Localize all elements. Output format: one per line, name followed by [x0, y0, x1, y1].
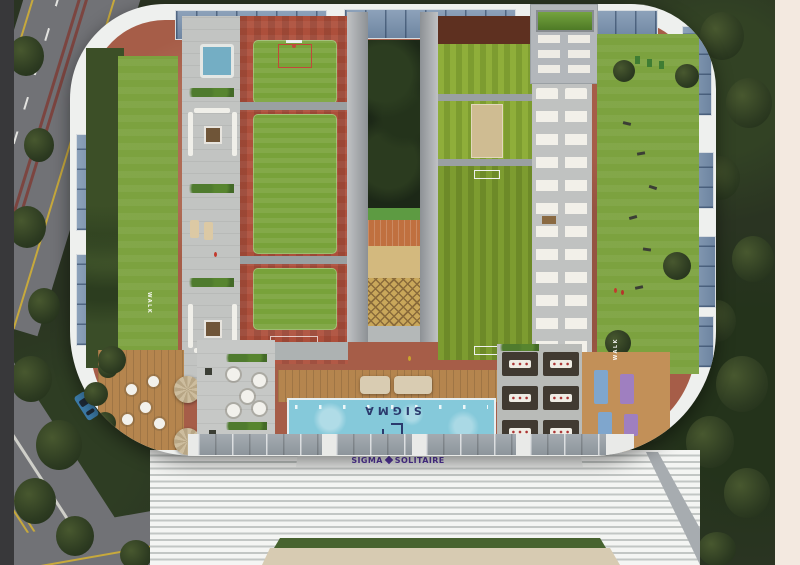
terrace-table	[253, 374, 266, 387]
tree	[28, 288, 60, 324]
tree	[84, 382, 108, 406]
solar-panel-array	[426, 434, 516, 455]
tree	[726, 78, 772, 128]
courtyard-walk-end	[368, 326, 420, 342]
yoga-mat	[594, 370, 608, 404]
tree	[724, 468, 770, 518]
facade-sign-word2: SOLITAIRE	[395, 456, 445, 465]
planter	[188, 88, 234, 97]
tree	[675, 64, 699, 88]
wing-wall-right	[420, 12, 438, 342]
car-rear-window	[85, 408, 95, 416]
tree	[732, 236, 774, 282]
terrace-table	[241, 390, 254, 403]
courtyard-paving-tan	[368, 246, 420, 278]
tree	[10, 356, 52, 402]
court-divider-walk	[438, 159, 533, 166]
lawn-chair	[647, 59, 652, 67]
turf-top-apron	[438, 16, 533, 44]
terrace-table	[227, 404, 240, 417]
cafe-table	[140, 402, 151, 413]
cabana	[543, 386, 579, 410]
bench	[542, 216, 556, 224]
walk-track-label: WALK	[146, 292, 152, 314]
turf-section	[438, 44, 533, 94]
court-divider-walk	[240, 102, 348, 110]
wing-wall-left	[347, 12, 368, 342]
tree	[14, 478, 56, 524]
screen-seating	[538, 35, 560, 79]
courtyard-mosaic	[368, 278, 420, 326]
basketball-rim	[292, 44, 296, 48]
cafe-table	[154, 418, 165, 429]
sign-logo-icon	[385, 456, 393, 464]
person	[614, 288, 617, 293]
lawn-chair	[635, 56, 640, 64]
court-section	[253, 114, 337, 254]
tree	[24, 128, 54, 162]
outdoor-gym-lawn	[597, 34, 699, 374]
goal-post	[474, 170, 500, 179]
sun-lounger	[204, 222, 213, 240]
yoga-mat	[624, 414, 638, 436]
coffee-table	[204, 126, 222, 144]
person	[408, 356, 411, 361]
margin-band-right	[775, 0, 800, 565]
cabana-table	[509, 360, 531, 368]
court-divider-walk	[438, 94, 533, 101]
gym-equipment	[637, 151, 645, 155]
cabana-table	[509, 394, 531, 402]
sofa	[188, 112, 193, 156]
turf-court-block	[438, 16, 533, 360]
person	[621, 290, 624, 295]
planter	[499, 344, 539, 351]
cafe-table	[122, 414, 133, 425]
cafe-table	[126, 384, 137, 395]
screen-lounge	[530, 4, 598, 84]
basketball-hoop	[286, 40, 302, 43]
pool-canopy	[394, 376, 432, 394]
gym-equipment	[643, 247, 651, 251]
cabana	[502, 386, 538, 410]
courtyard-canopy-trees	[368, 40, 420, 208]
sofa	[194, 108, 230, 113]
planter	[225, 422, 267, 430]
gym-equipment	[635, 285, 643, 289]
outdoor-screen	[536, 10, 594, 32]
cabana-table	[550, 360, 572, 368]
gym-equipment	[629, 215, 637, 220]
person	[214, 252, 217, 257]
sofa	[232, 112, 237, 156]
tree	[716, 356, 768, 412]
tree	[613, 60, 635, 82]
aerial-render-scene: SIGMA SOLITAIRE	[0, 0, 800, 565]
letterbox-band-left	[0, 0, 14, 565]
lawn-left	[118, 56, 178, 374]
tree	[120, 540, 152, 565]
solar-panel-array	[198, 434, 322, 455]
bbq-grill	[205, 368, 212, 375]
rooftop: SIGMA WALK WALK	[70, 4, 716, 456]
planter	[188, 184, 234, 193]
tree	[663, 252, 691, 280]
sofa	[188, 304, 193, 348]
facade-sign-word1: SIGMA	[351, 456, 382, 465]
cabana	[543, 352, 579, 376]
sun-lounger	[190, 220, 199, 238]
court-section	[253, 268, 337, 330]
cricket-pitch	[471, 104, 503, 158]
tree	[98, 346, 126, 374]
solar-panel-array	[336, 434, 412, 455]
courtyard-gap	[347, 12, 438, 342]
terrace-table	[227, 368, 240, 381]
cafe-table	[148, 376, 159, 387]
jacuzzi	[200, 44, 234, 78]
daybed-deck	[532, 84, 592, 384]
courtyard-lawn-strip	[368, 208, 420, 220]
pool-canopy	[360, 376, 390, 394]
football-turf-section	[438, 166, 533, 360]
lawn-chair	[659, 61, 664, 69]
cabana-table	[550, 394, 572, 402]
walk-track-label: WALK	[613, 338, 619, 360]
gym-equipment	[649, 185, 657, 190]
courtyard-paving-orange	[368, 220, 420, 246]
basketball-court-block	[240, 16, 348, 364]
cabana	[502, 352, 538, 376]
lounge-sofa-set	[188, 108, 240, 164]
tree	[698, 532, 736, 565]
tree	[94, 412, 116, 434]
tree	[36, 420, 82, 470]
yoga-mat	[598, 412, 612, 436]
court-divider-walk	[240, 256, 348, 264]
gym-equipment	[623, 121, 631, 125]
pool-brand-label: SIGMA	[289, 404, 494, 417]
yoga-mat	[620, 374, 634, 404]
planter	[188, 278, 234, 287]
walkway-left-wing	[182, 16, 248, 390]
terrace-table	[253, 402, 266, 415]
screen-seating	[568, 35, 590, 79]
daybed-rows	[536, 88, 558, 380]
solar-panel-array	[530, 434, 606, 455]
tower-facade: SIGMA SOLITAIRE	[150, 450, 700, 565]
daybed-rows	[565, 88, 587, 380]
tree	[56, 516, 94, 556]
coffee-table	[204, 320, 222, 338]
planter	[225, 354, 267, 362]
